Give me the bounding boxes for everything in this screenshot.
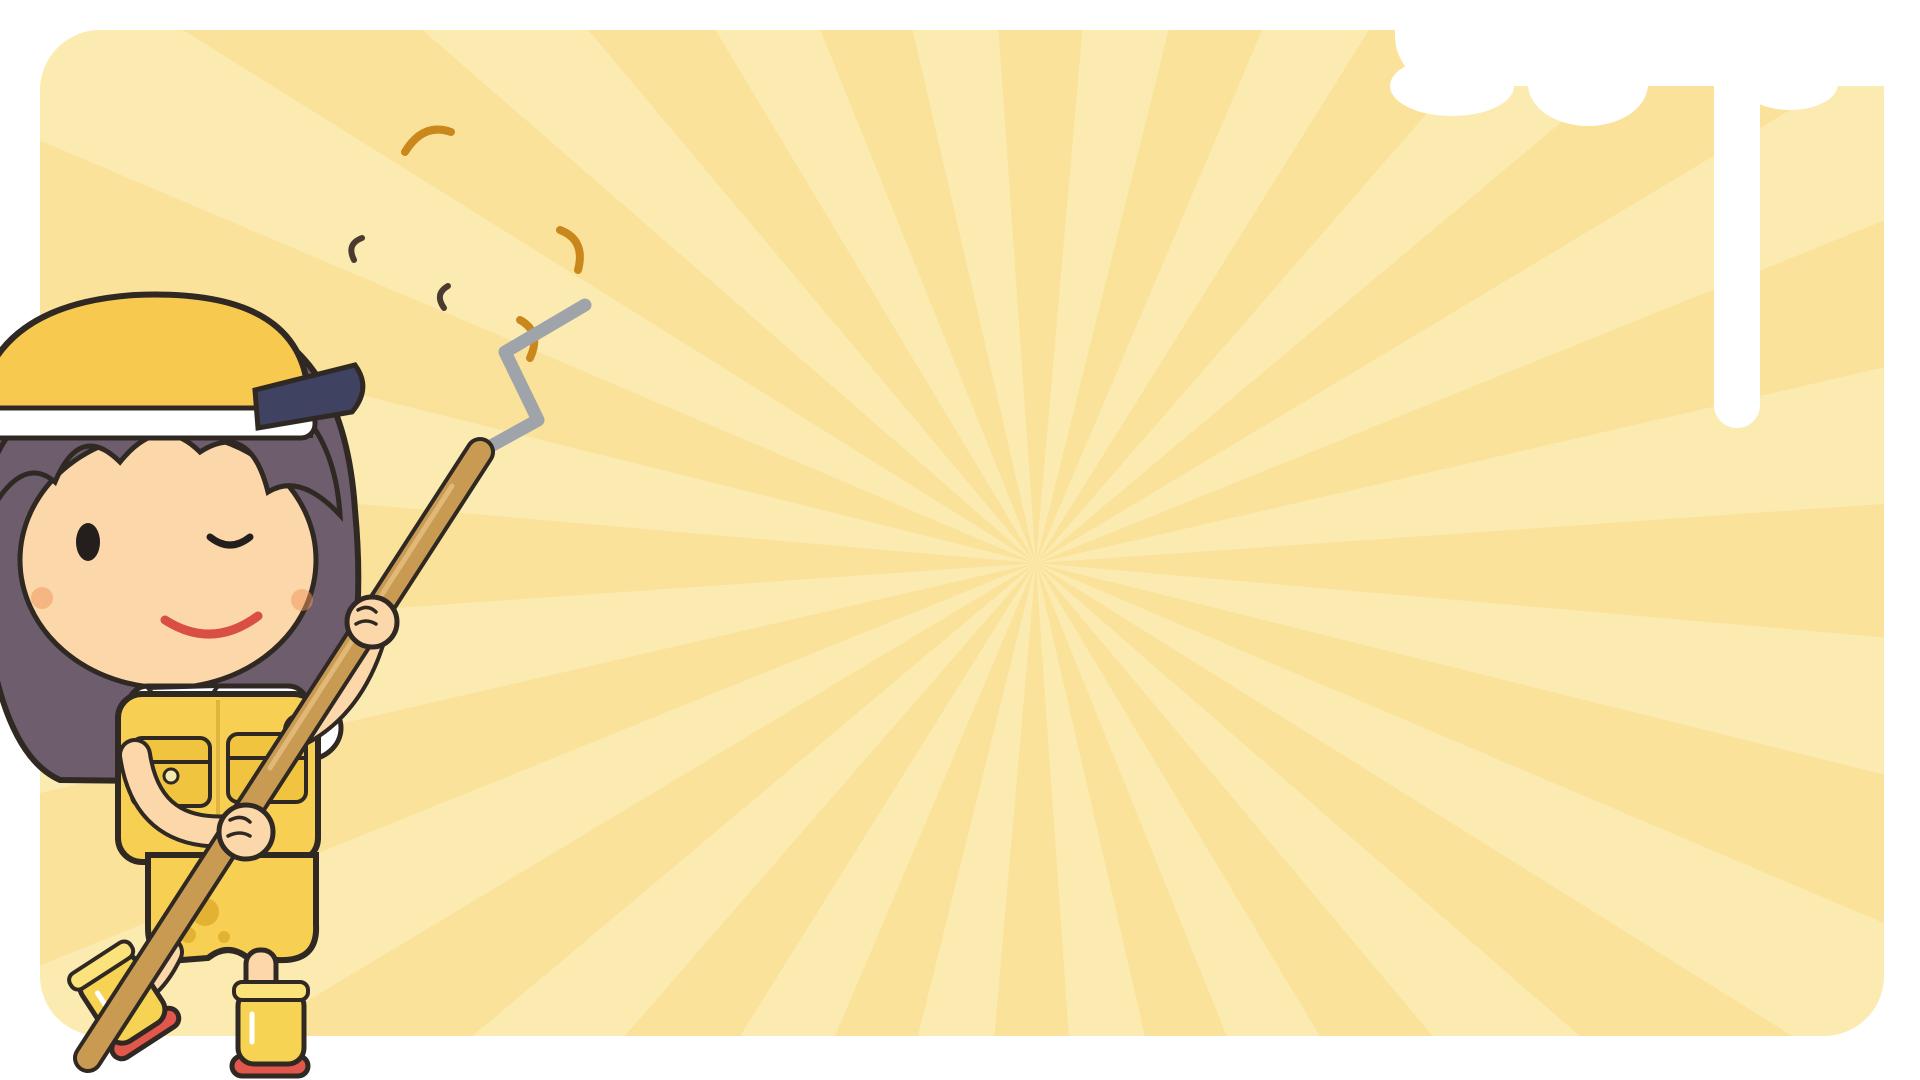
paint-roller: [351, 130, 585, 453]
melt-scallop: [1390, 56, 1514, 116]
melt-scallop: [1528, 42, 1648, 126]
paint-drip: [1714, 58, 1760, 428]
hand-lower: [219, 805, 273, 859]
painter-character: [0, 90, 680, 1080]
scene: [0, 0, 1920, 1080]
character-body: [0, 295, 480, 1076]
blush-left: [31, 587, 53, 609]
boot-right: [232, 982, 308, 1076]
eye-open: [76, 523, 100, 561]
panel-corner: [0, 0, 56, 56]
blush-right: [291, 589, 313, 611]
